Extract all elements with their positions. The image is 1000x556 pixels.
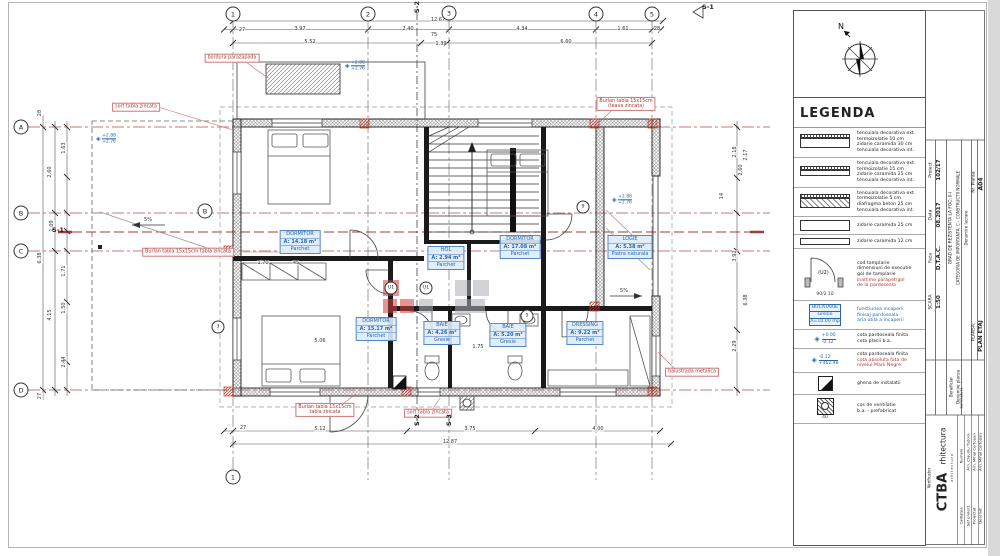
vent-symbol-icon: 40 — [797, 398, 853, 420]
level-symbol-icon: ◈-0.12+462.48 — [797, 355, 853, 366]
legend-item-vent: 40 cos de ventilatieb.a. - prefabricat — [794, 395, 925, 424]
north-label: N — [838, 22, 844, 31]
door-symbol-icon: (U2) 90/2.10 — [797, 252, 853, 297]
legend-panel: N LEGENDA tencuiala decorativa ext.termo… — [793, 10, 926, 546]
terrace-top — [237, 62, 425, 119]
stairs — [429, 127, 539, 234]
level-symbol-icon: ◈+0.00-0.12 — [797, 333, 853, 344]
legend-item-door: (U2) 90/2.10 cod tamplarie dimensiuni de… — [794, 249, 925, 301]
drawing-sheet: 273.972.404.341.612812.675.52751.396.602… — [0, 0, 988, 556]
legend-item-wall-4: zidarie caramida 25 cm — [794, 217, 925, 235]
watermark-block — [455, 299, 485, 313]
legend-item-wall-1: tencuiala decorativa ext.termoizolatie 1… — [794, 128, 925, 158]
legend-item-level-2: ◈-0.12+462.48 cota pardoseala finitacota… — [794, 349, 925, 373]
legend-item-ghena: ghena de instalatii — [794, 373, 925, 395]
compass-icon: N — [794, 11, 925, 97]
legend-item-room-label: BUCATARIE Gresie A=10.00 mp functiunea i… — [794, 301, 925, 330]
legend-item-wall-5: zidarie caramida 12 cm — [794, 235, 925, 249]
title-block — [925, 10, 985, 544]
room-label-sample: BUCATARIE Gresie A=10.00 mp — [797, 304, 853, 326]
watermark-block — [419, 299, 433, 313]
watermark-block — [400, 299, 414, 313]
wall-symbol-icon — [797, 137, 853, 148]
wall-symbol-icon — [797, 169, 853, 176]
interior-walls — [233, 127, 652, 388]
wall-symbol-icon — [797, 197, 853, 208]
north-arrow: N — [794, 11, 925, 98]
wall-symbol-icon — [797, 238, 853, 245]
legend-item-wall-3: tencuiala decorativa ext.termoizolatie 5… — [794, 188, 925, 218]
legend-item-level-1: ◈+0.00-0.12 cota pardoseala finitacota p… — [794, 330, 925, 348]
legend-title: LEGENDA — [794, 98, 925, 128]
terrace-left — [92, 121, 233, 390]
watermark-block — [383, 299, 397, 313]
watermark-block — [383, 280, 399, 296]
watermark-block — [455, 280, 471, 296]
page-edge — [988, 0, 1000, 556]
logo-watermark — [383, 280, 513, 318]
grid-axes — [28, 16, 770, 480]
wall-symbol-icon — [797, 220, 853, 231]
doors — [330, 214, 588, 432]
shaft-symbol-icon — [797, 376, 853, 391]
watermark-block — [473, 280, 489, 296]
legend-item-wall-2: tencuiala decorativa ext.termoizolatie 1… — [794, 158, 925, 188]
logie — [606, 176, 658, 299]
svg-text:(U2): (U2) — [818, 270, 829, 276]
